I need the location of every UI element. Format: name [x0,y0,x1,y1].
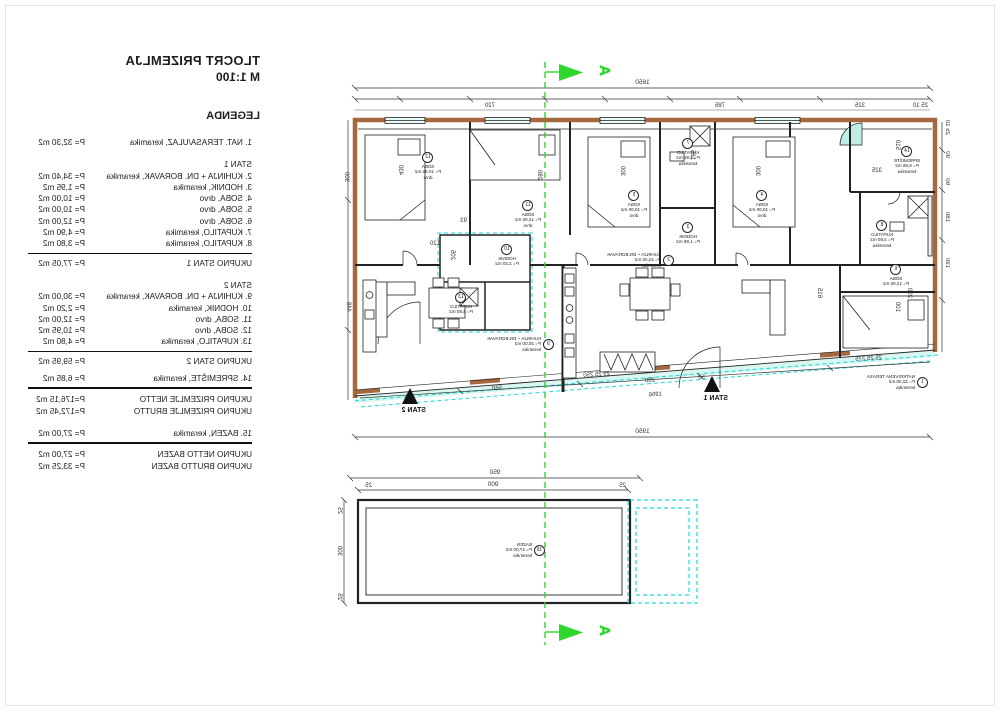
legend-row-label: 10. HODNIK, keramika [169,304,252,313]
legend-row: 4. SOBA, drvo P= 10,00 m2 [28,194,252,205]
legend-row-label: 8. KUPATILO, keramika [166,239,252,248]
room-text: BAZEN P= 27,00 m2 keramika [506,542,532,558]
legend-row: UKUPNO BRUTTO BAZEN P= 33,25 m2 [28,462,252,473]
legend-row: 9. KUHINJA + DN. BORAVAK, keramika P= 30… [28,292,252,303]
legend-row: 1. NAT. TERASA/ULAZ, keramika P= 32,30 m… [28,138,252,149]
room-label-hodnik10: 10 HODNIKP= 2,20 m2 [488,244,526,267]
stan1-marker-label: STAN 1 [704,395,728,402]
legend-row-value: P= 10,00 m2 [38,205,85,214]
legend-row: 7. KUPATILO, keramika P= 4,90 m2 [28,228,252,239]
room-text: KUHINJA + DN.BORAVAK P= 34,40 m2 keramik… [607,252,661,268]
room-number-badge: 4 [757,190,768,201]
legend-row-value: P= 77,05 m2 [38,259,85,268]
room-number-badge: 14 [902,146,913,157]
legend-row-label: UKUPNO PRIZEMLJE BRUTTO [134,407,252,416]
legend-row-label: 6. SOBA, drvo [200,217,252,226]
room-label-terasa: 1 NATKRIVENA TERASA P= 32,30 m2 keramika [798,374,928,390]
room-label-bazen: 15 BAZEN P= 27,00 m2 keramika [455,542,545,558]
legend-row-value: P= 10,00 m2 [38,194,85,203]
legend-row [28,149,252,160]
legend-row: UKUPNO STAN 2 P= 59,95 m2 [28,357,252,368]
dimension-label: 190 [944,258,950,268]
dimension-label: 25 10 [944,120,950,135]
legend-row: 15. BAZEN, keramika P= 27,00 m2 [28,429,252,440]
room-number-badge: 10 [502,244,513,255]
dimension-label: 300 [336,546,342,556]
legend-row-value: P= 4,90 m2 [43,228,85,237]
stan2-marker-label: STAN 2 [402,407,426,414]
dimension-label: 280 [536,170,542,180]
legend: 1. NAT. TERASA/ULAZ, keramika P= 32,30 m… [28,138,252,473]
room-label-hodnik3: 3 HODNIKP= 1,95 m2 [664,222,712,245]
legend-row: 5. SOBA, drvo P= 10,00 m2 [28,205,252,216]
legend-row [28,418,252,429]
room-label-soba12: 12 SOBAP= 10,95 m2drvo [404,152,452,180]
legend-row-label: STAN 1 [224,160,252,169]
legend-row-value: P=176,15 m2 [36,395,85,404]
legend-row-label: 15. BAZEN, keramika [173,429,252,438]
legend-row [28,442,252,450]
legend-row-label: 13. KUPATILO, keramika [161,337,252,346]
room-label-kuhinja-stan2: 9 KUHINJA + DN.BORAVAK P= 30,00 m2 keram… [459,336,554,352]
drawing-scale: M 1:100 [10,70,260,84]
dimension-label: 1956 [648,392,662,399]
drawing-title: TLOCRT PRIZEMLJA [10,53,260,68]
dimension-label: 50 [698,375,705,381]
dimension-label: 300 [343,172,349,182]
dimension-label: 60 [944,178,950,185]
mirrored-drawing: TLOCRT PRIZEMLJA M 1:100 LEGENDA 1. NAT.… [0,0,1000,711]
room-number-badge: 7 [683,138,694,149]
legend-row: 14. SPREMIŠTE, keramika P= 6,85 m2 [28,374,252,385]
room-label-spremiste: 14 SPREMIŠTEP= 6,85 m2keramika [876,146,938,174]
legend-row: 10. HODNIK, keramika P= 2,20 m2 [28,304,252,315]
legend-row-value: P= 27,00 m2 [38,450,85,459]
legend-row-label: 1. NAT. TERASA/ULAZ, keramika [130,138,252,147]
room-text: NATKRIVENA TERASA P= 32,30 m2 keramika [867,374,915,390]
legend-row: UKUPNO STAN 1 P= 77,05 m2 [28,259,252,270]
dim-top-total: 1650 [355,79,930,86]
legend-row: 13. KUPATILO, keramika P= 4,80 m2 [28,337,252,348]
legend-row-value: P= 2,20 m2 [43,304,85,313]
legend-row-label: 5. SOBA, drvo [200,205,252,214]
legend-row: 8. KUPATILO, keramika P= 3,80 m2 [28,239,252,250]
room-number-badge: 3 [683,222,694,233]
legend-row: STAN 1 [28,160,252,171]
legend-row: 3. HODNIK, keramika P= 1,95 m2 [28,183,252,194]
legend-row-value: P= 12,00 m2 [38,315,85,324]
dimension-label: 300 [619,166,625,176]
legend-heading: LEGENDA [10,110,260,122]
legend-row: 12. SOBA, drvo P= 10,95 m2 [28,326,252,337]
room-text: KUHINJA + DN.BORAVAK P= 30,00 m2 keramik… [487,336,541,352]
legend-row-value: P= 4,80 m2 [43,337,85,346]
dim-pool-total: 950 [350,469,640,476]
dimension-label: 25 [619,483,626,489]
room-label-soba6: 6 SOBAP= 12,00 m2 [872,264,920,287]
dimension-label: 25 10 [913,103,928,109]
dimension-label: 615 [816,288,822,298]
dimension-label: 720 [485,103,495,109]
legend-row-value: P= 6,85 m2 [43,374,85,383]
room-label-kupatilo8: 8 KUPATILOP= 3,80 m2keramika [856,220,908,248]
room-number-badge: 8 [877,220,888,231]
room-label-kupatilo13: 13 KUPATILOP= 4,80 m2 [440,292,482,315]
legend-row-label: 3. HODNIK, keramika [173,183,252,192]
dim-bottom-total: 1950 [355,428,930,435]
room-number-badge: 13 [456,292,467,303]
dimension-label: 93 [460,218,467,224]
legend-row-label: UKUPNO BRUTTO BAZEN [152,462,252,471]
room-number-badge: 6 [891,264,902,275]
legend-row-label: 7. KUPATILO, keramika [166,228,252,237]
dimension-label: 180 [944,212,950,222]
legend-row-value: P= 59,95 m2 [38,357,85,366]
legend-row-value: P= 3,80 m2 [43,239,85,248]
legend-row-label: 2. KUHINJA + DN. BORAVAK, keramika [106,172,252,181]
room-number-badge: 12 [423,152,434,163]
room-label-soba11: 11 SOBAP= 12,00 m2drvo [504,200,552,228]
room-label-kuhinja-stan1: 2 KUHINJA + DN.BORAVAK P= 34,40 m2 keram… [579,252,674,268]
dimension-label: 200 [906,288,912,298]
room-label-soba4: 4 SOBAP= 10,00 m2drvo [738,190,786,218]
room-number-badge: 11 [523,200,534,211]
legend-row-value: P= 1,95 m2 [43,183,85,192]
legend-row: 2. KUHINJA + DN. BORAVAK, keramika P= 34… [28,172,252,183]
section-arrow-bottom [559,624,583,641]
legend-row: 11. SOBA, drvo P= 12,00 m2 [28,315,252,326]
legend-row [28,270,252,281]
legend-row-label: 9. KUHINJA + DN. BORAVAK, keramika [106,292,252,301]
legend-row: UKUPNO PRIZEMLJE NETTO P=176,15 m2 [28,395,252,406]
legend-row-label: UKUPNO PRIZEMLJE NETTO [140,395,252,404]
dimension-label: 785 [715,103,725,109]
room-label-kupatilo7: 7 KUPATILOP= 4,90 m2keramika [662,138,714,166]
dimension-label: 325 [855,103,865,109]
legend-row-value: P= 30,00 m2 [38,292,85,301]
legend-row-label: UKUPNO STAN 1 [187,259,252,268]
legend-row-value: P= 33,25 m2 [38,462,85,471]
section-letter-top: A [596,65,613,76]
room-number-badge: 15 [534,545,545,556]
dimension-label: 300 [754,166,760,176]
scanned-floorplan-sheet: TLOCRT PRIZEMLJA M 1:100 LEGENDA 1. NAT.… [0,0,1000,711]
room-number-badge: 1 [917,377,928,388]
legend-row: 6. SOBA, drvo P= 12,00 m2 [28,217,252,228]
dimension-label: 25 [365,483,372,489]
dimension-label: 25 [336,593,342,600]
room-number-badge: 5 [629,190,640,201]
dim-pool-inner: 900 [358,481,628,488]
legend-row-label: STAN 2 [224,281,252,290]
legend-row-label: 14. SPREMIŠTE, keramika [153,374,252,383]
dimension-label: 100 [894,302,900,312]
legend-row: STAN 2 [28,281,252,292]
legend-row-value: P= 10,95 m2 [38,326,85,335]
legend-row-value: P= 27,00 m2 [38,429,85,438]
legend-row-label: 4. SOBA, drvo [200,194,252,203]
dimension-label: 120 [430,241,440,247]
dimension-label: 448 [345,302,351,312]
dimension-label: 560 [492,386,502,393]
legend-row-label: UKUPNO NETTO BAZEN [158,450,252,459]
section-letter-bottom: A [596,625,613,636]
legend-row: UKUPNO NETTO BAZEN P= 27,00 m2 [28,450,252,461]
room-number-badge: 9 [543,339,554,350]
legend-row: UKUPNO PRIZEMLJE BRUTTO P=172,45 m2 [28,407,252,418]
legend-row-value: P= 12,00 m2 [38,217,85,226]
legend-row-value: P= 32,30 m2 [38,138,85,147]
legend-row-value: P= 34,40 m2 [38,172,85,181]
legend-row-value: P=172,45 m2 [36,407,85,416]
legend-row-label: 12. SOBA, drvo [195,326,252,335]
title-block: TLOCRT PRIZEMLJA M 1:100 LEGENDA [10,53,260,122]
room-label-soba5: 5 SOBAP= 10,00 m2drvo [610,190,658,218]
room-number-badge: 2 [663,255,674,266]
legend-row [28,387,252,395]
legend-row-label: 11. SOBA, drvo [196,315,252,324]
dimension-label: 430 [397,165,403,175]
legend-row-label: UKUPNO STAN 2 [187,357,252,366]
dimension-label: 90 [944,151,950,158]
dimension-label: 205 [449,250,455,260]
dimension-label: 200 [645,378,655,385]
dimension-label: 25 [336,507,342,514]
